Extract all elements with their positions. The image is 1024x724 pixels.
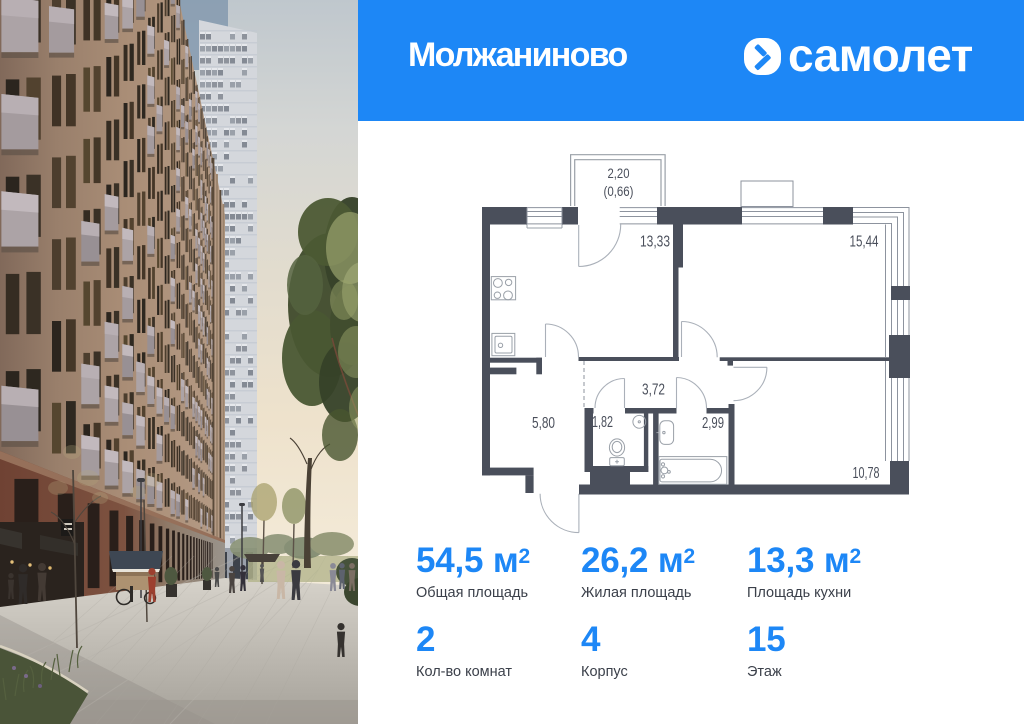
svg-text:2,20: 2,20 [608,165,630,181]
svg-text:1,82: 1,82 [592,414,613,431]
svg-text:самолет: самолет [788,34,973,81]
svg-text:13,33: 13,33 [640,234,670,251]
svg-text:10,78: 10,78 [853,465,880,482]
svg-text:2,99: 2,99 [702,415,724,432]
svg-text:5,80: 5,80 [532,415,555,432]
svg-text:15,44: 15,44 [850,234,879,251]
svg-text:3,72: 3,72 [642,382,665,399]
svg-text:(0,66): (0,66) [604,183,634,199]
